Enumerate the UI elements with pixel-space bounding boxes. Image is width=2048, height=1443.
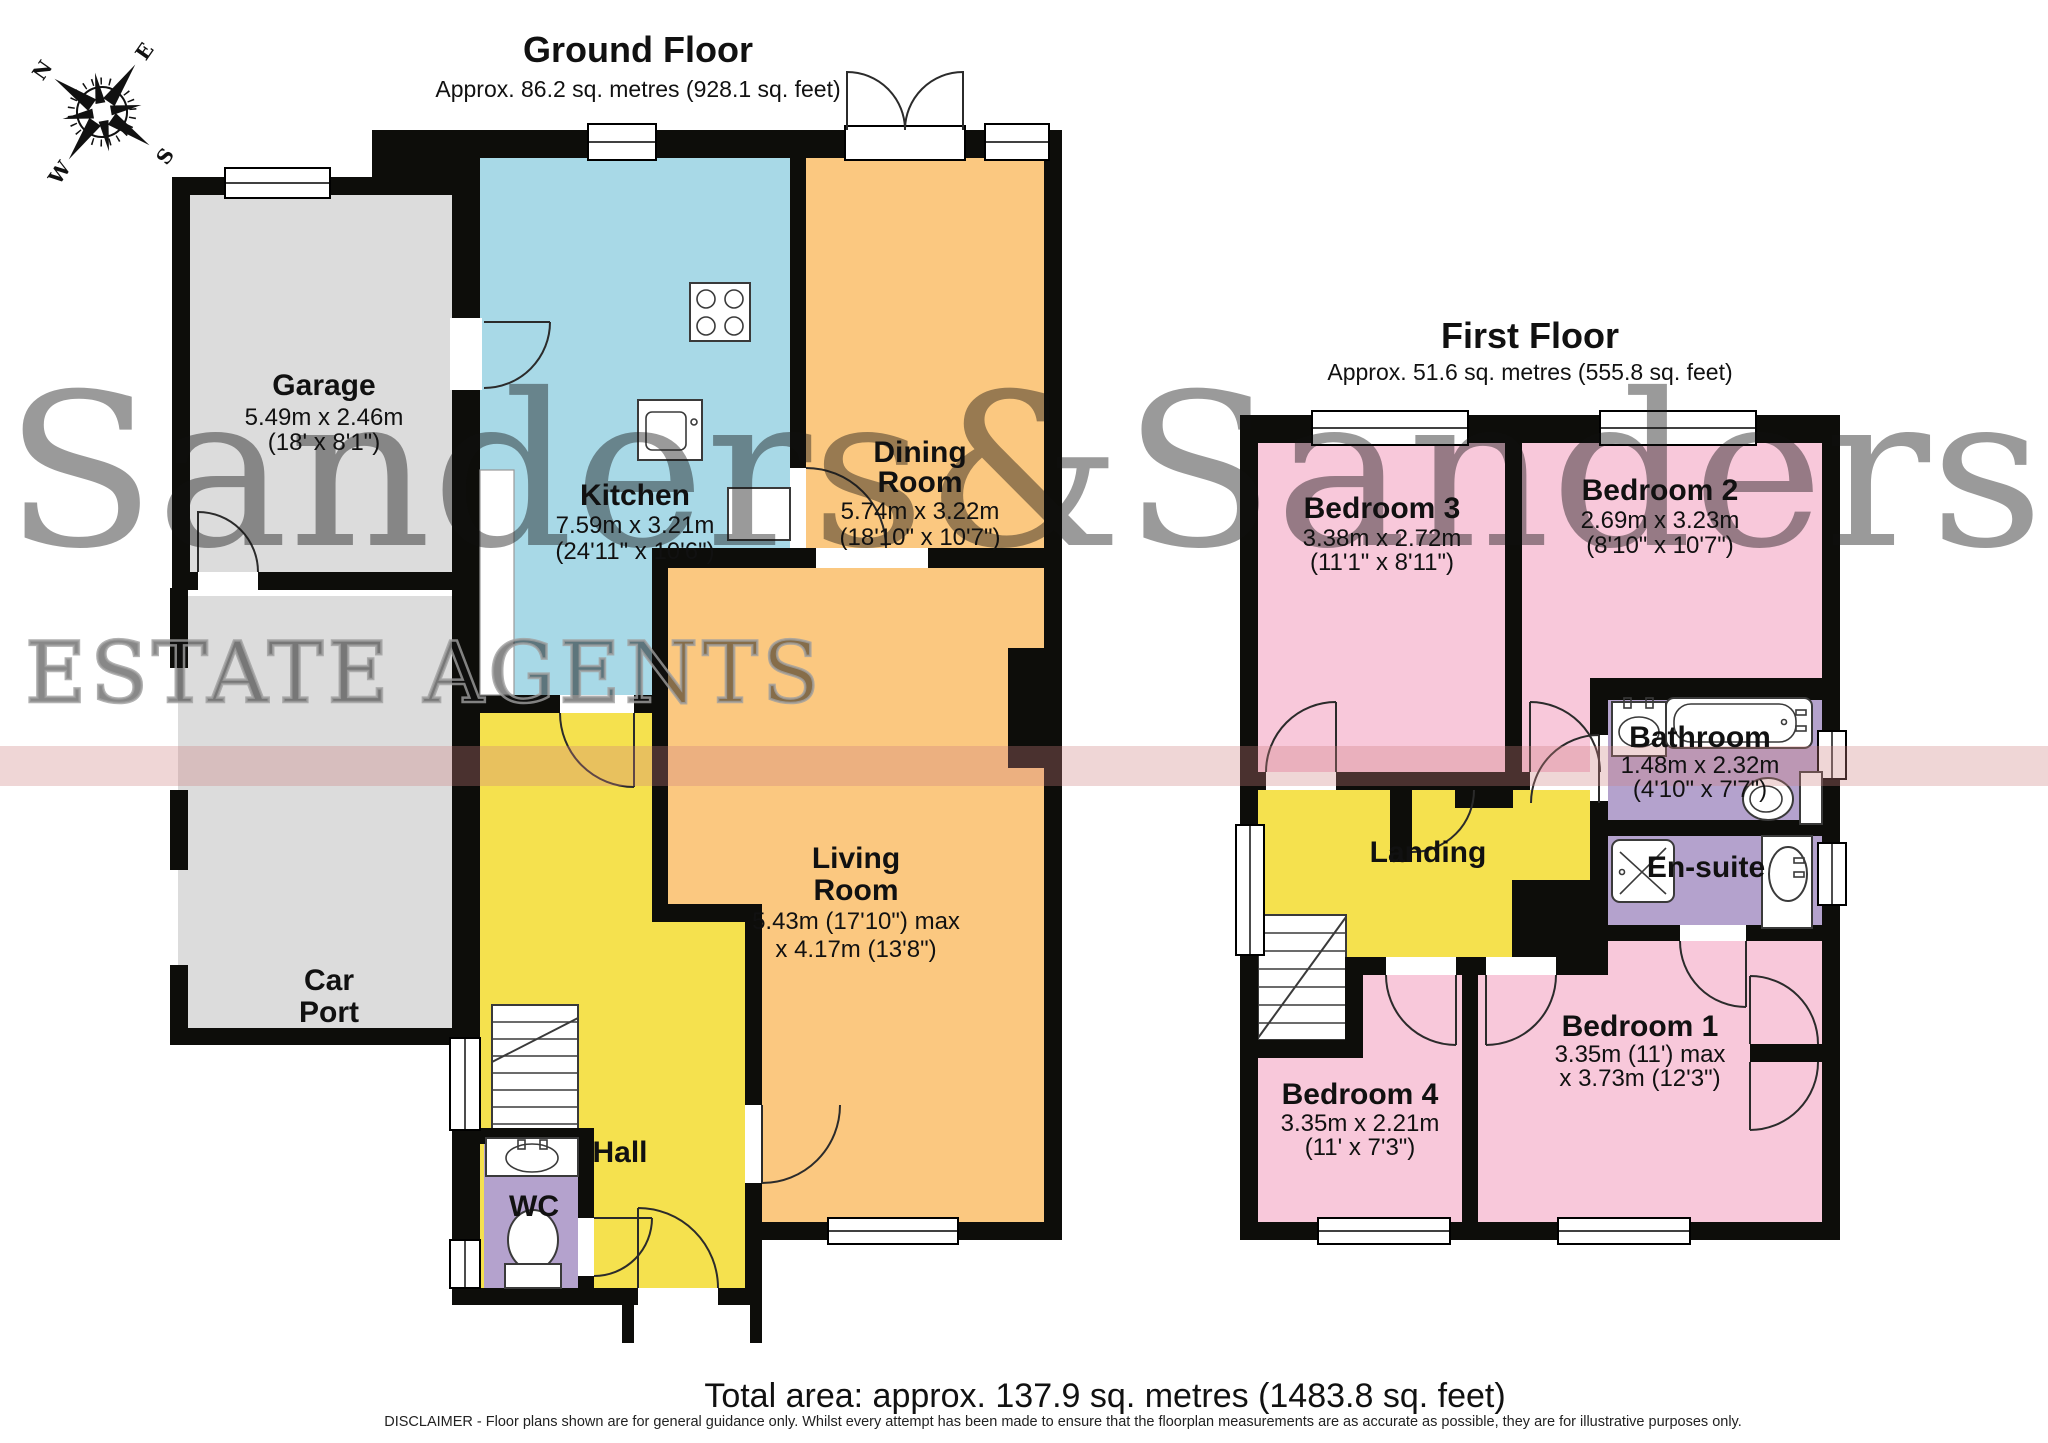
svg-text:(18' x 8'1"): (18' x 8'1") [268, 429, 380, 456]
svg-text:5.43m (17'10") max: 5.43m (17'10") max [752, 908, 960, 935]
svg-text:Bedroom 4: Bedroom 4 [1282, 1078, 1439, 1111]
svg-text:Living: Living [812, 842, 900, 875]
svg-text:Bedroom 2: Bedroom 2 [1582, 474, 1739, 507]
landing-window [1236, 825, 1264, 955]
kitchen-window [588, 124, 656, 160]
svg-text:3.38m x 2.72m: 3.38m x 2.72m [1303, 525, 1462, 552]
disclaimer-text: DISCLAIMER - Floor plans shown are for g… [384, 1414, 1742, 1430]
first-floor-title: First Floor [1441, 315, 1619, 356]
svg-text:3.35m (11') max: 3.35m (11') max [1555, 1041, 1726, 1068]
french-doors [845, 72, 965, 160]
compass-west-label: W [43, 156, 76, 189]
wc-label: WC [509, 1190, 559, 1223]
hall-rear-door [450, 1240, 480, 1288]
car-port-label: Car Port [299, 964, 359, 1029]
dining-window [985, 124, 1049, 160]
svg-text:x 3.73m (12'3"): x 3.73m (12'3") [1559, 1065, 1720, 1092]
floorplan-canvas: Sanders&Sanders ESTATE AGENTS N E S W Gr… [0, 0, 2048, 1443]
floorplan-page: Sanders&Sanders ESTATE AGENTS N E S W Gr… [0, 0, 2048, 1443]
svg-text:Room: Room [878, 466, 963, 499]
svg-text:5.49m x 2.46m: 5.49m x 2.46m [245, 404, 404, 431]
svg-text:Bathroom: Bathroom [1629, 721, 1771, 754]
ensuite-sink-icon [1762, 836, 1812, 928]
svg-text:(18'10" x 10'7"): (18'10" x 10'7") [840, 524, 1001, 551]
svg-text:Bedroom 1: Bedroom 1 [1562, 1010, 1719, 1043]
bedroom1-label: Bedroom 1 3.35m (11') max x 3.73m (12'3"… [1555, 1010, 1726, 1092]
hob-icon [690, 283, 750, 341]
svg-text:Room: Room [814, 874, 899, 907]
landing-label: Landing [1370, 836, 1487, 869]
svg-text:x 4.17m (13'8"): x 4.17m (13'8") [775, 936, 936, 963]
svg-text:7.59m x 3.21m: 7.59m x 3.21m [556, 512, 715, 539]
svg-text:(11' x 7'3"): (11' x 7'3") [1305, 1134, 1416, 1161]
bedroom3-label: Bedroom 3 3.38m x 2.72m (11'1" x 8'11") [1303, 492, 1462, 576]
ground-floor-area: Approx. 86.2 sq. metres (928.1 sq. feet) [435, 76, 840, 102]
svg-text:Bedroom 3: Bedroom 3 [1304, 492, 1461, 525]
hall-label: Hall [592, 1136, 647, 1169]
compass-east-label: E [130, 38, 158, 64]
watermark-tagline: ESTATE AGENTS [25, 624, 824, 722]
svg-text:1.48m x 2.32m: 1.48m x 2.32m [1621, 752, 1780, 779]
compass-south-label: S [151, 143, 179, 169]
bedroom2-label: Bedroom 2 2.69m x 3.23m (8'10" x 10'7") [1581, 474, 1740, 559]
ensuite-label: En-suite [1647, 851, 1765, 884]
svg-text:(4'10" x 7'7"): (4'10" x 7'7") [1633, 776, 1767, 803]
svg-text:5.74m x 3.22m: 5.74m x 3.22m [841, 498, 1000, 525]
garage-window [225, 168, 330, 198]
svg-text:(24'11" x 10'6"): (24'11" x 10'6") [555, 538, 714, 565]
ensuite-window [1818, 843, 1846, 905]
svg-text:(8'10" x 10'7"): (8'10" x 10'7") [1586, 532, 1734, 559]
living-window [828, 1218, 958, 1244]
svg-text:(11'1" x 8'11"): (11'1" x 8'11") [1310, 549, 1454, 576]
landing-staircase [1258, 915, 1346, 1040]
svg-text:2.69m x 3.23m: 2.69m x 3.23m [1581, 507, 1740, 534]
wc-sink-icon [486, 1138, 578, 1176]
svg-text:Kitchen: Kitchen [580, 479, 690, 512]
svg-text:3.35m x 2.21m: 3.35m x 2.21m [1281, 1110, 1440, 1137]
total-area-text: Total area: approx. 137.9 sq. metres (14… [704, 1377, 1505, 1415]
bedroom4-window [1318, 1218, 1450, 1244]
svg-text:Car: Car [304, 964, 354, 997]
svg-text:Port: Port [299, 996, 359, 1029]
bathroom-label: Bathroom 1.48m x 2.32m (4'10" x 7'7") [1621, 721, 1780, 803]
wardrobe-divider [1750, 1044, 1822, 1062]
first-floor-area: Approx. 51.6 sq. metres (555.8 sq. feet) [1327, 359, 1732, 385]
compass-north-label: N [27, 56, 57, 85]
svg-text:Garage: Garage [272, 369, 375, 402]
svg-text:Dining: Dining [873, 436, 966, 469]
bedroom1-window [1558, 1218, 1690, 1244]
hall-side-door [450, 1038, 480, 1130]
hall-staircase [492, 1005, 578, 1140]
ground-floor-title: Ground Floor [523, 29, 753, 70]
